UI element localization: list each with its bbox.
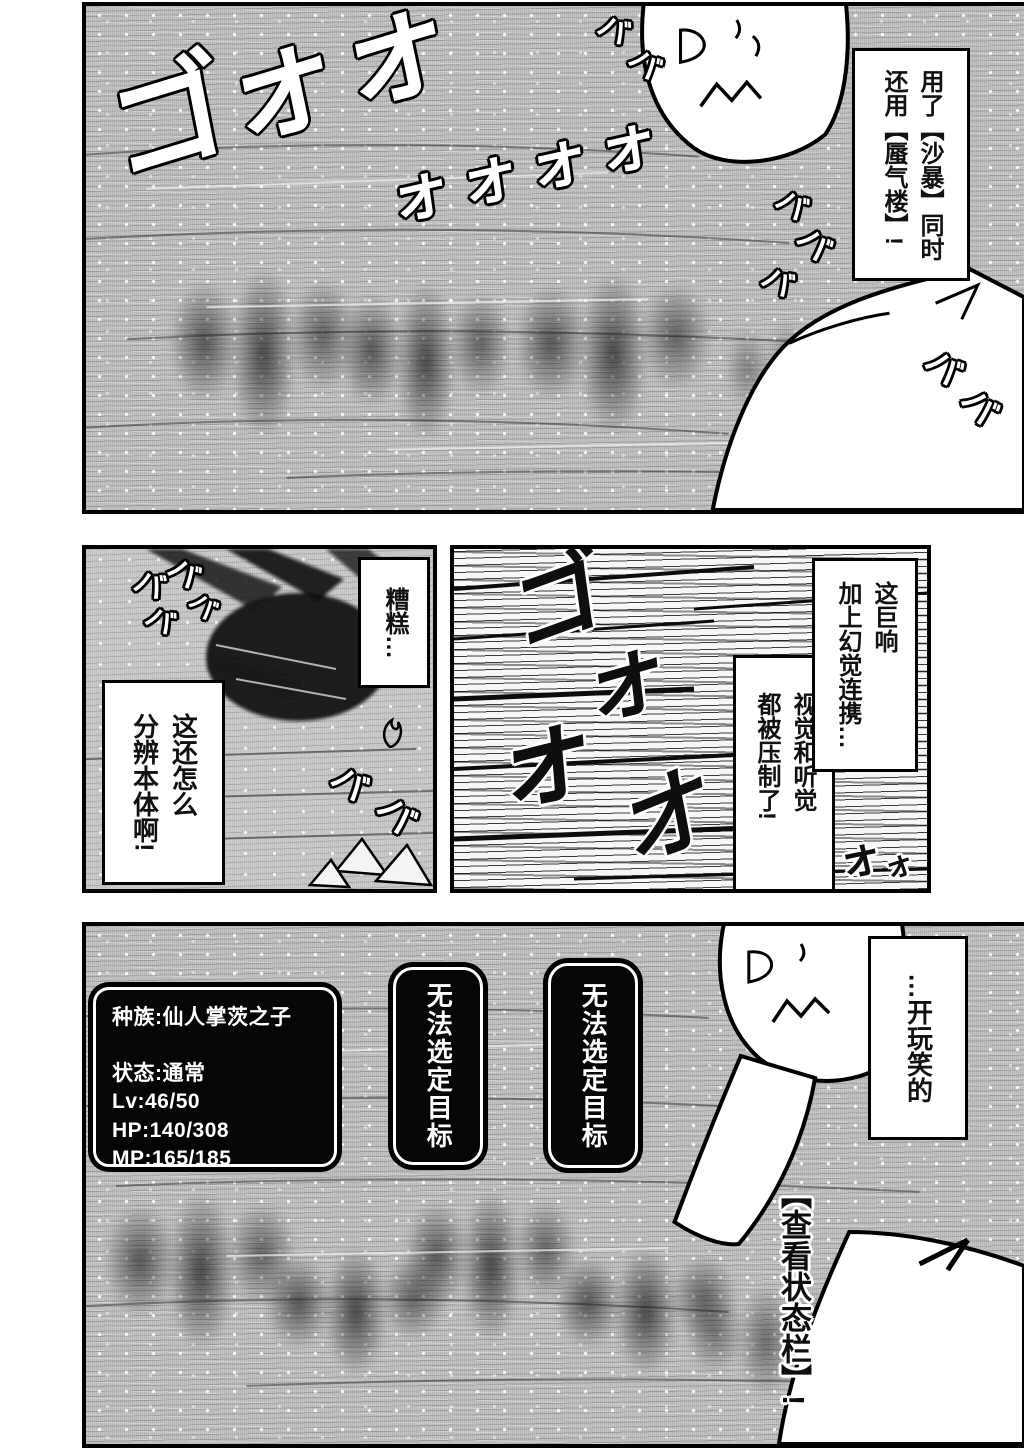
speech-skills-line1: 用了【沙暴】同时 <box>911 69 947 261</box>
flame-doodle-icon <box>384 720 401 747</box>
ghost-arm <box>779 1232 1024 1444</box>
debris-shards <box>310 839 431 887</box>
speech-joke-text: …开玩笑的 <box>899 973 938 1103</box>
sfx-roar-3: ォ <box>492 694 600 825</box>
status-window: 种族:仙人掌茨之子 状态:通常 Lv:46/50 HP:140/308 MP:1… <box>93 987 337 1167</box>
speech-bubble-skills: 用了【沙暴】同时 还用【蜃气楼】! <box>852 48 970 281</box>
status-condition: 状态:通常 <box>112 1060 318 1088</box>
speech-identify-line1: 这还怎么 <box>164 713 203 852</box>
panel-top: ゴォォ ォォォォ バ バ バ バ バ バ バ 用了【沙暴】同时 还用【蜃气楼】! <box>82 2 1024 514</box>
speech-skills-line2: 还用【蜃气楼】! <box>875 69 911 261</box>
panel-mid-right: ゴ ォ ォ オ ォ ォ 视觉和听觉 都被压制了! 这巨响 加上幻觉连携… <box>450 545 931 893</box>
speech-trouble-text: 糟糕… <box>376 587 412 659</box>
status-species: 种族:仙人掌茨之子 <box>112 1004 318 1032</box>
panel-mid-left: バ バ バ バ バ バ 糟糕… 这还怎么 分辨本体啊! <box>82 545 437 893</box>
ghost-character <box>675 926 1024 1444</box>
target-error-text: 无法选定目标 <box>579 982 608 1150</box>
target-error-text: 无法选定目标 <box>424 982 453 1150</box>
speech-noise-line1: 这巨响 <box>865 581 901 749</box>
speech-bubble-noise: 这巨响 加上幻觉连携… <box>812 558 918 772</box>
speech-senses-line2: 都被压制了! <box>748 692 784 820</box>
status-hp: HP:140/308 <box>112 1117 318 1145</box>
speech-noise-line2: 加上幻觉连携… <box>829 581 865 749</box>
speech-bubble-identify: 这还怎么 分辨本体啊! <box>102 680 225 885</box>
speech-bubble-joke: …开玩笑的 <box>868 936 968 1140</box>
status-mp: MP:165/185 <box>112 1145 318 1173</box>
speech-identify-line2: 分辨本体啊! <box>125 713 164 852</box>
target-error-box-left: 无法选定目标 <box>393 967 483 1165</box>
sfx-roar-small: ォ <box>834 833 886 885</box>
target-error-box-right: 无法选定目标 <box>548 963 638 1168</box>
sfx-view-status: 【查看状态栏】! <box>778 1178 809 1405</box>
manga-page: ゴォォ ォォォォ バ バ バ バ バ バ バ 用了【沙暴】同时 还用【蜃气楼】! <box>0 0 1024 1456</box>
status-spacer <box>112 1032 318 1060</box>
status-level: Lv:46/50 <box>112 1088 318 1116</box>
speech-bubble-trouble: 糟糕… <box>358 557 430 688</box>
panel-bottom: 种族:仙人掌茨之子 状态:通常 Lv:46/50 HP:140/308 MP:1… <box>82 922 1024 1448</box>
